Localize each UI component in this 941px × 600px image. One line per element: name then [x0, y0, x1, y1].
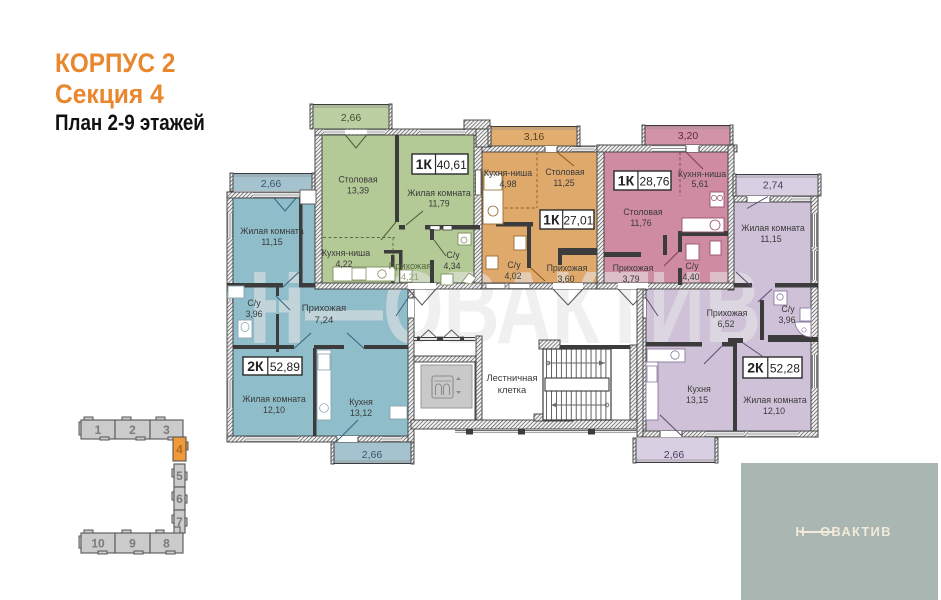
svg-text:2,66: 2,66: [664, 449, 685, 461]
svg-text:Столовая: Столовая: [623, 207, 663, 217]
svg-text:52,89: 52,89: [270, 360, 300, 374]
svg-text:Кухня-ниша: Кухня-ниша: [484, 168, 532, 178]
svg-text:1К: 1К: [543, 212, 560, 228]
svg-text:4: 4: [176, 442, 183, 456]
svg-text:11,15: 11,15: [760, 234, 781, 244]
svg-text:52,28: 52,28: [770, 362, 800, 376]
svg-text:Жилая комната: Жилая комната: [743, 395, 807, 405]
svg-text:9: 9: [129, 536, 136, 550]
svg-text:2К: 2К: [747, 360, 764, 376]
svg-text:Прихожая: Прихожая: [389, 261, 432, 271]
svg-text:27,01: 27,01: [563, 214, 593, 228]
svg-text:2,66: 2,66: [362, 449, 383, 461]
svg-text:Жилая комната: Жилая комната: [240, 226, 304, 236]
svg-text:7,24: 7,24: [315, 315, 334, 326]
svg-text:1К: 1К: [416, 156, 433, 172]
svg-text:4,40: 4,40: [682, 272, 699, 282]
svg-text:Кухня-ниша: Кухня-ниша: [322, 248, 370, 258]
svg-text:5,61: 5,61: [691, 179, 708, 189]
svg-text:10: 10: [91, 536, 105, 550]
svg-text:Жилая комната: Жилая комната: [741, 223, 805, 233]
svg-text:Прихожая: Прихожая: [547, 263, 588, 273]
svg-text:Кухня-ниша: Кухня-ниша: [678, 169, 726, 179]
svg-text:С/у: С/у: [446, 250, 460, 260]
svg-text:Столовая: Столовая: [338, 175, 378, 185]
svg-text:13,12: 13,12: [350, 408, 372, 418]
svg-text:1: 1: [95, 423, 102, 437]
svg-text:4,98: 4,98: [499, 179, 516, 189]
svg-text:3,16: 3,16: [524, 131, 545, 143]
svg-text:3,20: 3,20: [678, 130, 699, 142]
svg-text:С/у: С/у: [247, 298, 261, 308]
svg-text:4,21: 4,21: [401, 272, 419, 282]
svg-text:С/у: С/у: [507, 260, 521, 270]
svg-text:Прихожая: Прихожая: [707, 308, 748, 318]
svg-text:11,15: 11,15: [261, 237, 282, 247]
svg-text:2,66: 2,66: [341, 112, 362, 124]
svg-text:11,79: 11,79: [428, 199, 449, 209]
svg-text:6,52: 6,52: [717, 319, 734, 329]
svg-text:6: 6: [176, 492, 183, 506]
svg-text:Жилая комната: Жилая комната: [407, 188, 471, 198]
svg-text:5: 5: [176, 469, 183, 483]
svg-text:28,76: 28,76: [639, 175, 669, 189]
svg-text:11,25: 11,25: [553, 178, 574, 188]
svg-text:2К: 2К: [247, 358, 264, 374]
svg-text:клетка: клетка: [498, 384, 527, 395]
svg-text:3,96: 3,96: [245, 309, 262, 319]
svg-text:С/у: С/у: [781, 304, 795, 314]
svg-text:Кухня: Кухня: [687, 384, 711, 394]
svg-text:2,66: 2,66: [261, 178, 282, 190]
svg-text:4,34: 4,34: [443, 261, 460, 271]
svg-text:2: 2: [129, 423, 136, 437]
svg-text:1К: 1К: [618, 173, 635, 189]
svg-text:Прихожая: Прихожая: [613, 263, 654, 273]
svg-text:12,10: 12,10: [263, 405, 285, 415]
svg-text:3,60: 3,60: [557, 274, 574, 284]
svg-text:3,79: 3,79: [622, 274, 639, 284]
svg-text:3: 3: [163, 423, 170, 437]
svg-text:40,61: 40,61: [437, 158, 467, 172]
svg-text:Столовая: Столовая: [545, 167, 585, 177]
svg-text:12,10: 12,10: [763, 406, 785, 416]
svg-text:4,02: 4,02: [504, 271, 521, 281]
svg-text:2,74: 2,74: [763, 180, 784, 192]
svg-text:8: 8: [163, 536, 170, 550]
svg-text:Прихожая: Прихожая: [302, 303, 346, 314]
svg-text:4,22: 4,22: [335, 259, 352, 269]
svg-text:11,76: 11,76: [630, 218, 651, 228]
svg-text:Кухня: Кухня: [349, 397, 373, 407]
svg-text:С/у: С/у: [685, 261, 699, 271]
svg-text:Жилая комната: Жилая комната: [242, 394, 306, 404]
svg-text:13,39: 13,39: [347, 186, 369, 196]
svg-text:3,96: 3,96: [778, 315, 795, 325]
svg-text:Лестничная: Лестничная: [486, 372, 537, 383]
svg-text:13,15: 13,15: [686, 395, 708, 405]
